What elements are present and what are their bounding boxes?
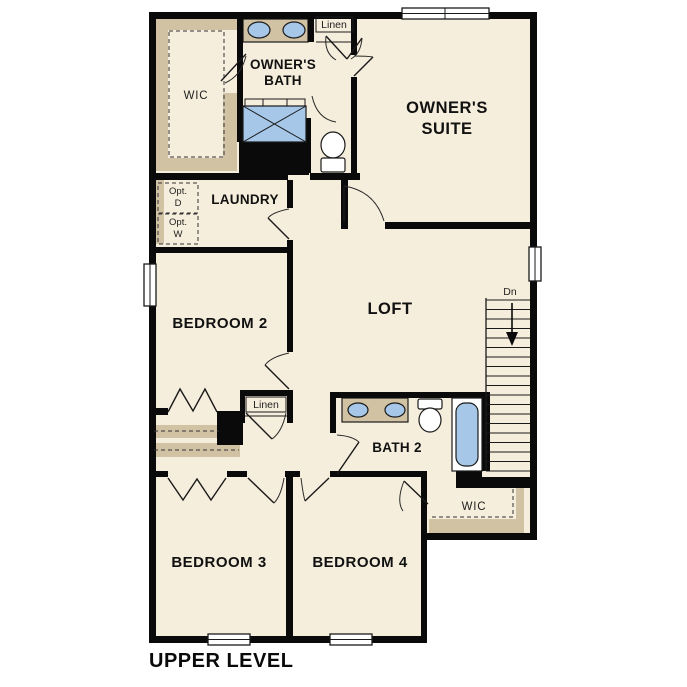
- floor-plan-page: WIC OWNER'S BATH Linen OWNER'S SUITE LAU…: [0, 0, 687, 687]
- owners-bath-label-line2: BATH: [264, 73, 302, 88]
- floor-caption: UPPER LEVEL: [149, 650, 293, 672]
- toilet-icon: [418, 399, 442, 432]
- laundry-label: LAUNDRY: [211, 192, 279, 207]
- owners-bath-label-line1: OWNER'S: [250, 57, 316, 72]
- stairs-down-label: Dn: [503, 286, 517, 298]
- loft-label: LOFT: [367, 300, 412, 318]
- opt-dryer-label-line1: Opt.: [169, 186, 187, 197]
- wic-bottom-shelf: [156, 158, 237, 171]
- laundry-shelf-strip: [156, 180, 164, 244]
- bedroom4-label: BEDROOM 4: [312, 554, 408, 571]
- sink-icon: [348, 403, 368, 417]
- owners-suite-label-line2: SUITE: [421, 120, 472, 138]
- wic-bottom-right-shelf: [516, 484, 524, 519]
- bedroom3-label: BEDROOM 3: [171, 554, 266, 571]
- bath2-label: BATH 2: [372, 440, 422, 455]
- bathtub-icon: [452, 398, 482, 471]
- bedroom2-label: BEDROOM 2: [172, 315, 267, 332]
- linen-top-label: Linen: [321, 19, 347, 31]
- wic-top-label: WIC: [184, 90, 209, 102]
- sink-icon: [248, 22, 270, 38]
- owners-suite-label-line1: OWNER'S: [406, 99, 488, 117]
- linen-mid-label: Linen: [253, 399, 279, 411]
- sink-icon: [385, 403, 405, 417]
- toilet-icon: [321, 132, 345, 172]
- opt-washer-label-line2: W: [174, 229, 183, 240]
- sink-icon: [283, 22, 305, 38]
- wic-right-shelf: [223, 93, 237, 158]
- wic-top-shelf: [156, 19, 237, 30]
- wic-left-shelf: [156, 19, 168, 171]
- floor-plan-svg: WIC OWNER'S BATH Linen OWNER'S SUITE LAU…: [0, 0, 687, 687]
- opt-dryer-label-line2: D: [175, 198, 182, 209]
- opt-washer-label-line1: Opt.: [169, 217, 187, 228]
- wic-bottom-label: WIC: [462, 501, 487, 513]
